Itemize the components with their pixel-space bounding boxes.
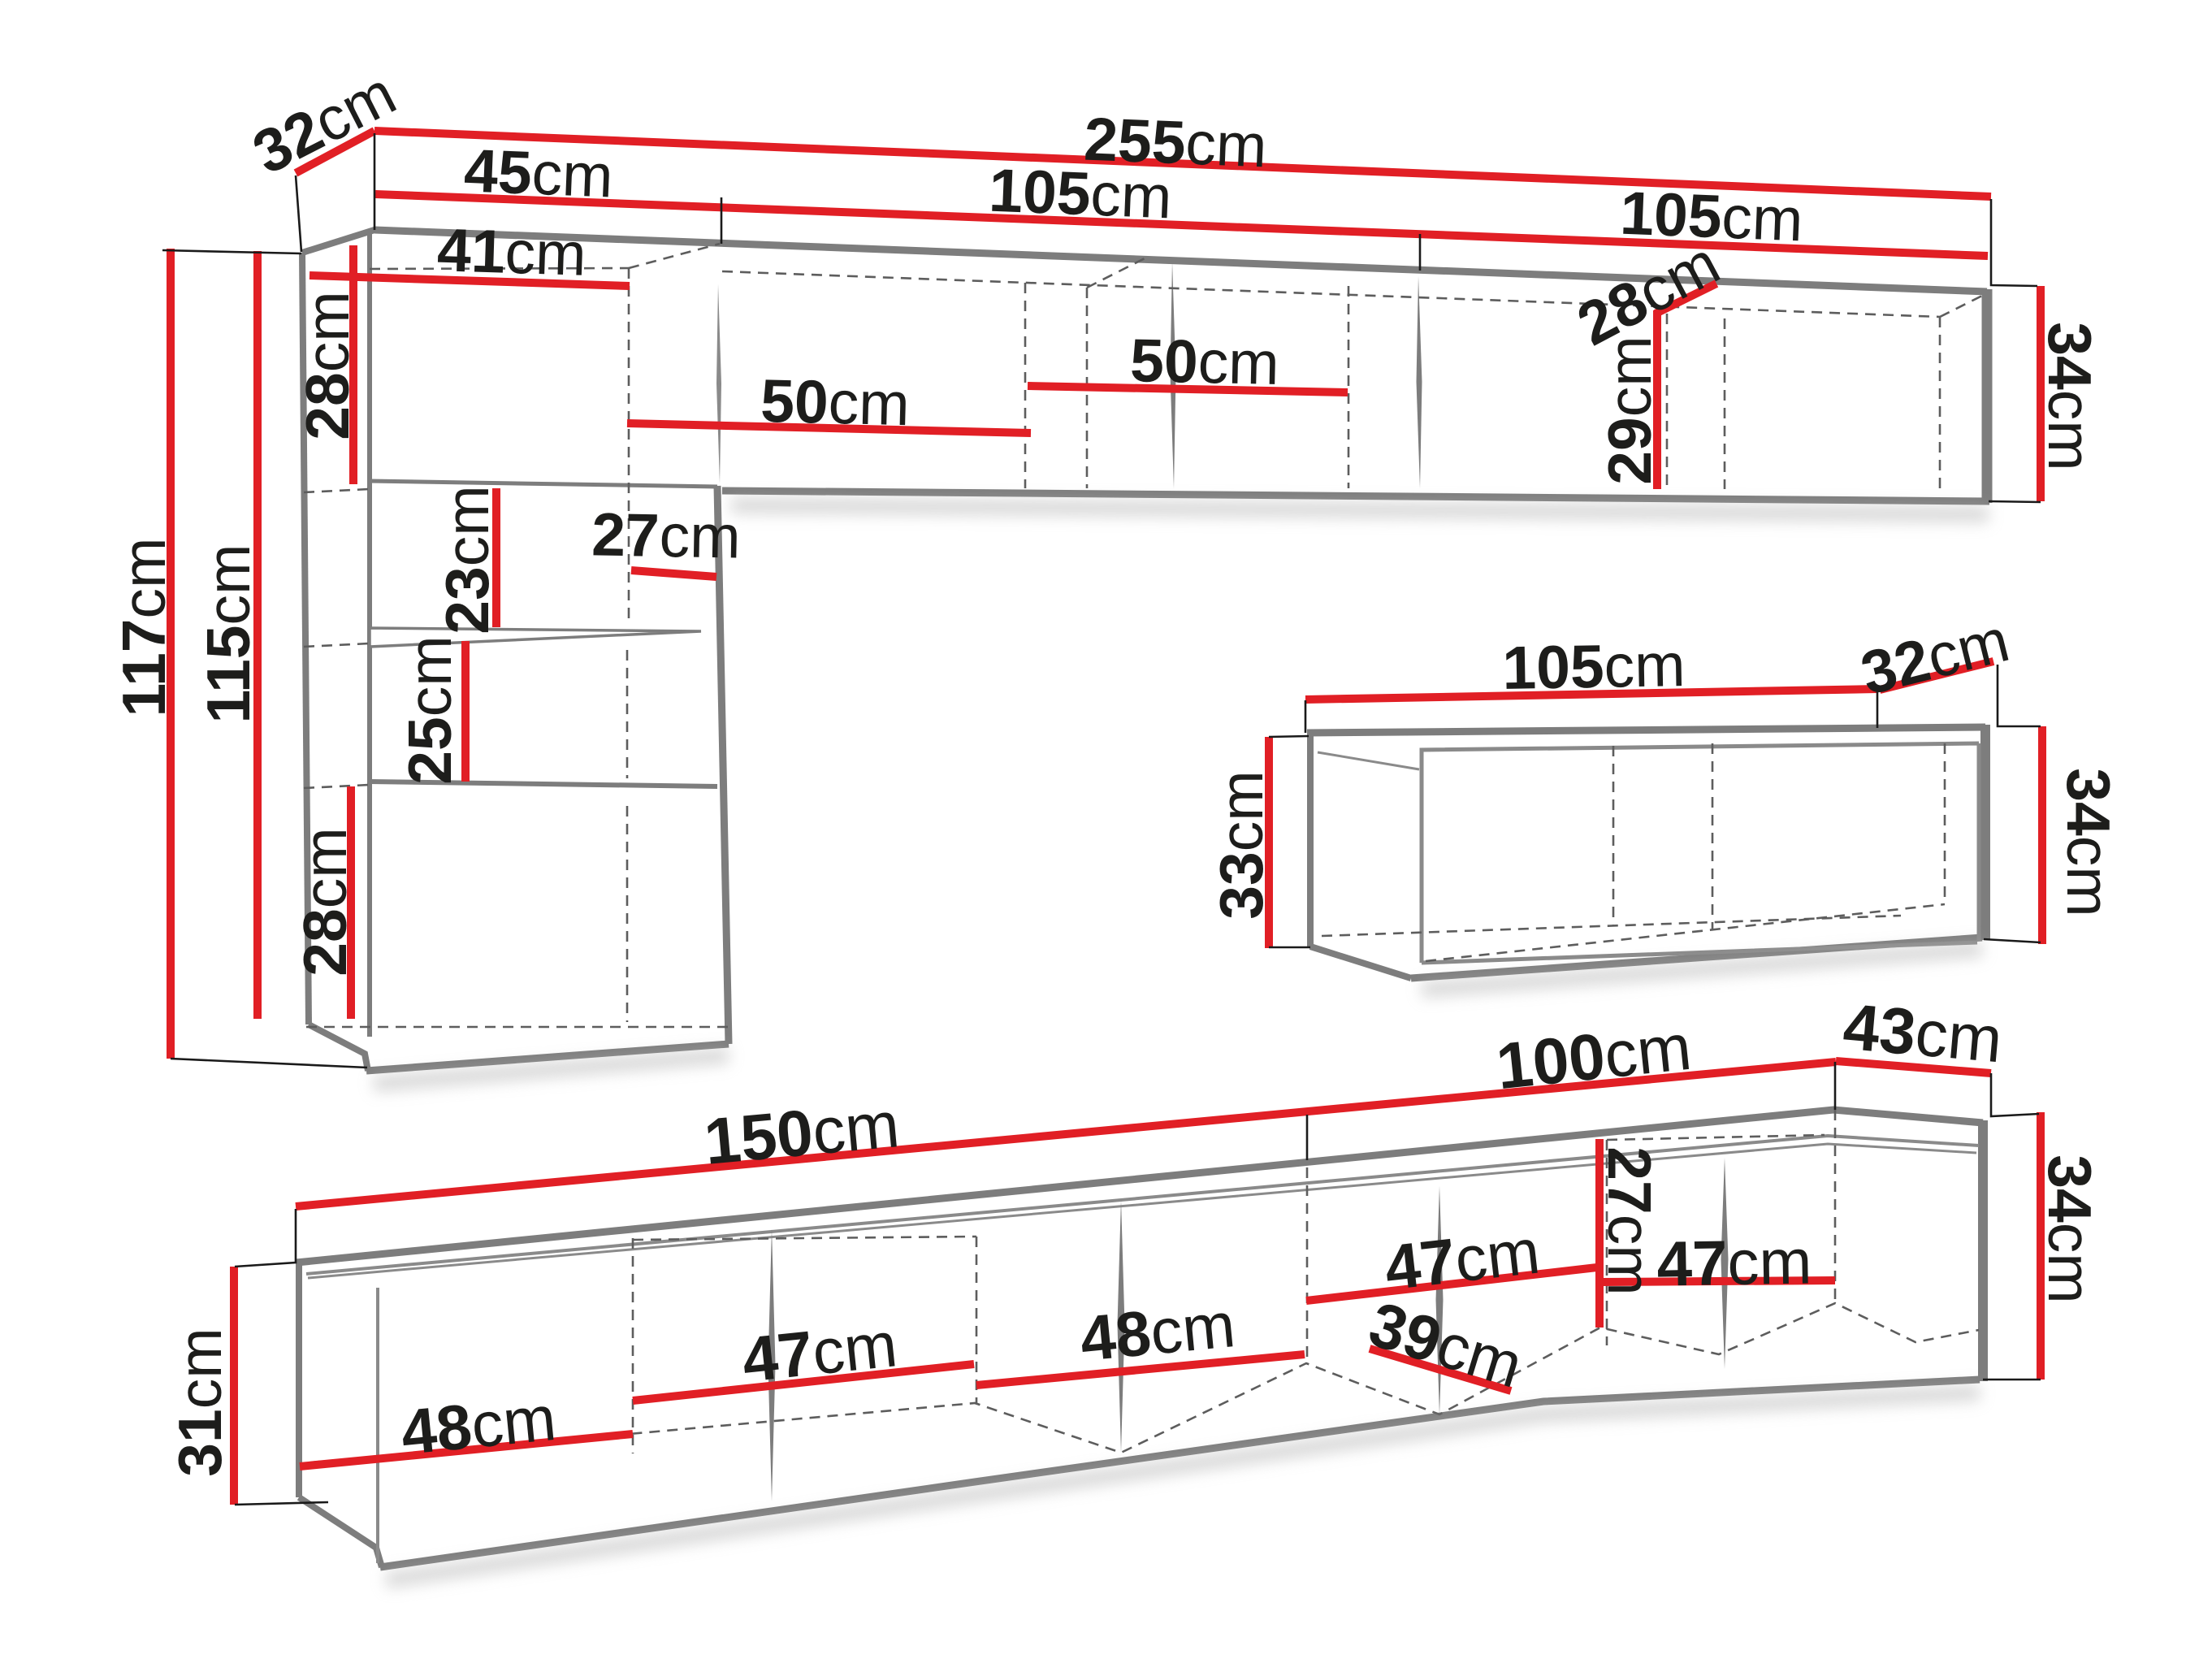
- svg-text:105cm: 105cm: [988, 156, 1173, 232]
- svg-text:117cm: 117cm: [110, 538, 178, 717]
- svg-text:43cm: 43cm: [1841, 990, 2006, 1076]
- svg-text:29cm: 29cm: [1595, 336, 1664, 484]
- svg-text:115cm: 115cm: [194, 544, 262, 724]
- svg-text:34cm: 34cm: [2054, 768, 2123, 916]
- svg-text:105cm: 105cm: [1502, 630, 1686, 702]
- svg-text:34cm: 34cm: [2036, 322, 2104, 470]
- svg-text:45cm: 45cm: [463, 136, 615, 210]
- svg-text:33cm: 33cm: [1207, 770, 1275, 919]
- svg-text:25cm: 25cm: [396, 635, 464, 784]
- svg-text:48cm: 48cm: [398, 1382, 559, 1468]
- svg-text:47cm: 47cm: [1656, 1225, 1812, 1299]
- svg-text:50cm: 50cm: [760, 366, 910, 438]
- svg-text:31cm: 31cm: [166, 1328, 234, 1476]
- svg-text:105cm: 105cm: [1619, 179, 1804, 254]
- svg-text:23cm: 23cm: [433, 485, 501, 634]
- svg-text:34cm: 34cm: [2036, 1154, 2104, 1303]
- svg-text:48cm: 48cm: [1077, 1289, 1238, 1375]
- svg-text:28cm: 28cm: [293, 291, 361, 440]
- svg-text:27cm: 27cm: [591, 500, 742, 570]
- svg-text:27cm: 27cm: [1595, 1146, 1664, 1295]
- svg-text:28cm: 28cm: [291, 827, 359, 976]
- svg-text:50cm: 50cm: [1129, 326, 1279, 397]
- svg-text:41cm: 41cm: [436, 215, 587, 288]
